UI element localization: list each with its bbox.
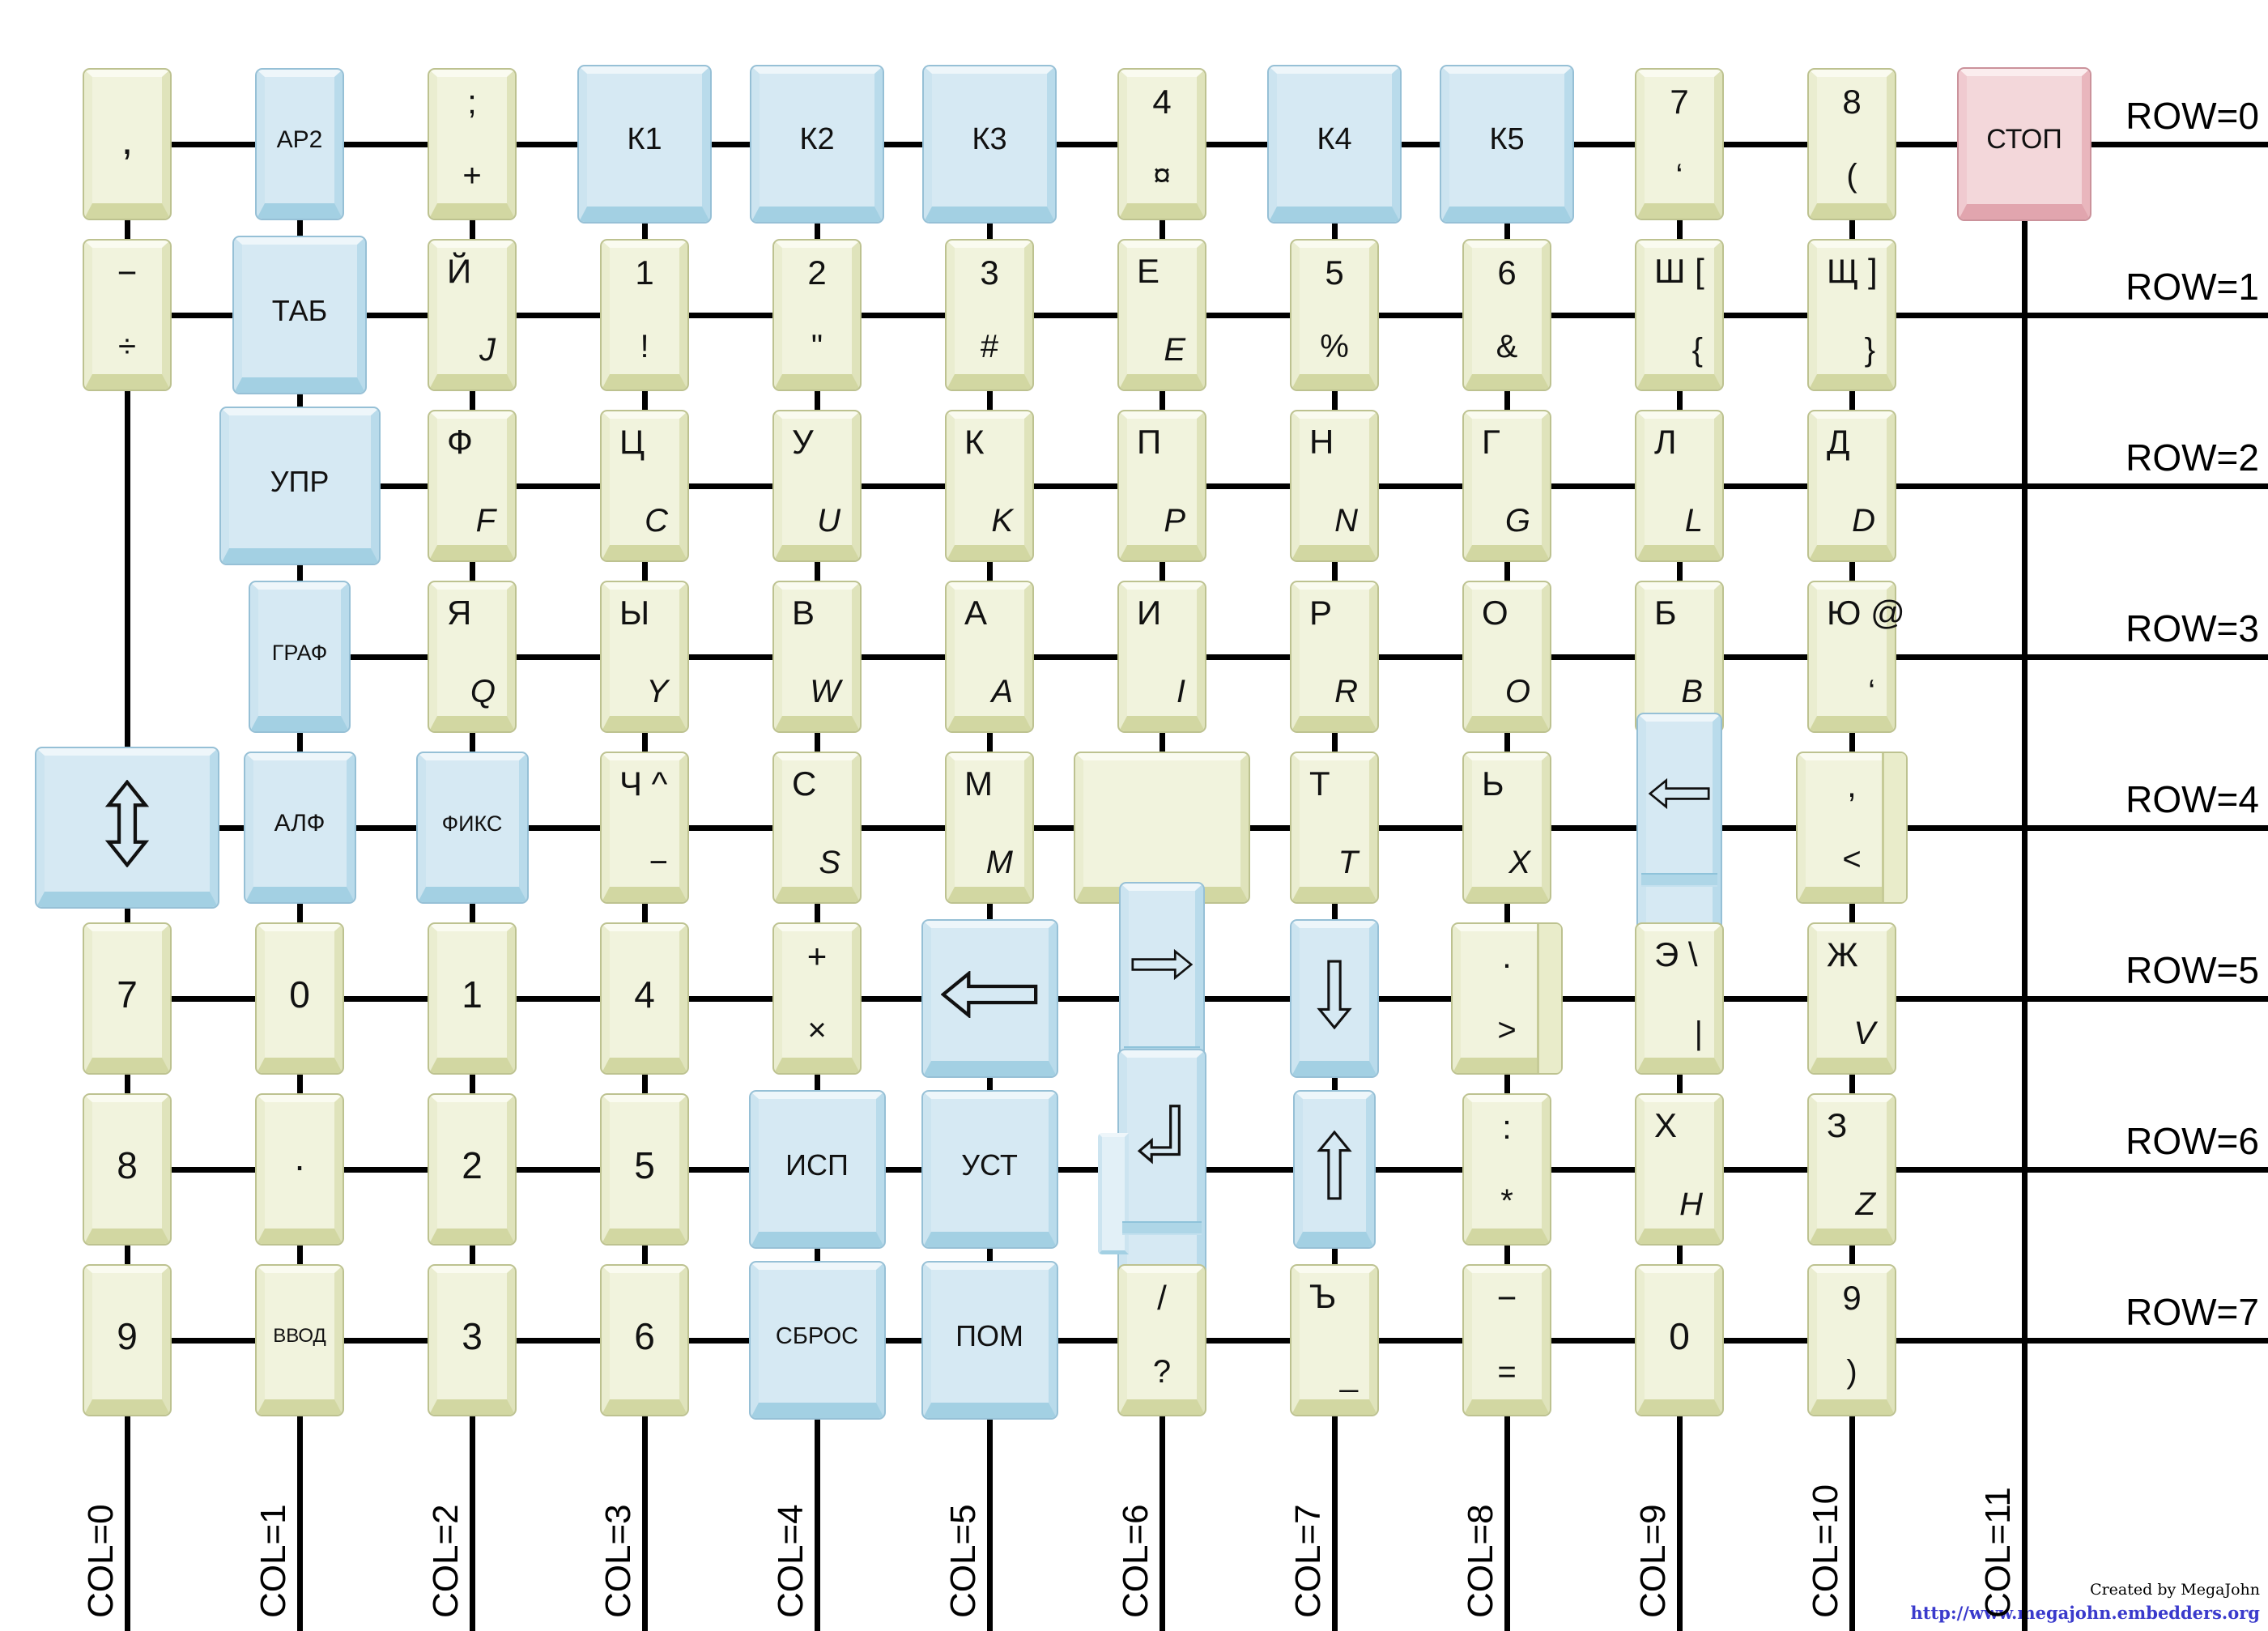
key-label: ИСП bbox=[759, 1099, 876, 1232]
keyboard-matrix-diagram: Created by MegaJohn http://www.megajohn.… bbox=[0, 0, 2268, 1631]
key-r4c8[interactable]: ЬX bbox=[1464, 753, 1550, 902]
key-label-main: Е bbox=[1137, 254, 1160, 288]
key-r1c8[interactable]: 6& bbox=[1464, 241, 1550, 390]
key-label-main: Я bbox=[447, 596, 471, 630]
key-label-shift: − bbox=[649, 846, 668, 879]
key-label-shift: Z bbox=[1856, 1188, 1875, 1220]
key-r4c3[interactable]: Ч ^− bbox=[602, 753, 687, 902]
key-label-shift: L bbox=[1685, 505, 1703, 537]
key-label-main: 1 bbox=[610, 256, 679, 290]
key-r0c11[interactable]: СТОП bbox=[1959, 69, 2090, 219]
key-label-shift: " bbox=[782, 330, 852, 363]
key-label-shift: E bbox=[1164, 334, 1185, 366]
key-label-main: Д bbox=[1827, 425, 1849, 459]
key-label-main: 4 bbox=[1127, 85, 1197, 119]
key-r4c7[interactable]: ТT bbox=[1291, 753, 1377, 902]
key-label-main: Щ ] bbox=[1827, 254, 1878, 288]
key-r5c1[interactable]: 0 bbox=[257, 924, 343, 1073]
key-label-shift: X bbox=[1508, 846, 1530, 879]
key-label-main: 5 bbox=[1300, 256, 1369, 290]
key-r0c8[interactable]: К5 bbox=[1441, 66, 1572, 222]
credit-author: Created by MegaJohn bbox=[1910, 1579, 2260, 1601]
key-r2c9[interactable]: ЛL bbox=[1636, 411, 1722, 560]
key-r0c1[interactable]: АР2 bbox=[257, 70, 343, 219]
key-label-shift: ‘ bbox=[1868, 675, 1875, 708]
key-r0c10[interactable]: 8( bbox=[1809, 70, 1895, 219]
row-label-2: ROW=2 bbox=[2061, 436, 2259, 479]
key-label-main: В bbox=[792, 596, 815, 630]
col-label-8: COL=8 bbox=[1458, 1440, 1504, 1618]
key-label-main: Л bbox=[1654, 425, 1677, 459]
enter-icon bbox=[1127, 1058, 1197, 1274]
key-r3c7[interactable]: РR bbox=[1291, 582, 1377, 731]
key-r5c9[interactable]: Э \| bbox=[1636, 924, 1722, 1073]
col-label-10: COL=10 bbox=[1803, 1440, 1849, 1618]
key-label-shift: U bbox=[817, 505, 840, 537]
key-label: К2 bbox=[760, 74, 874, 207]
key-r6c4[interactable]: ИСП bbox=[751, 1092, 884, 1247]
key-r3c6[interactable]: ИI bbox=[1119, 582, 1205, 731]
key-r2c5[interactable]: КK bbox=[947, 411, 1032, 560]
key-r7c0[interactable]: 9 bbox=[84, 1266, 170, 1415]
key-label: 9 bbox=[92, 1273, 162, 1399]
key-label-shift: D bbox=[1852, 505, 1875, 537]
key-label-main: Б bbox=[1654, 596, 1677, 630]
credits: Created by MegaJohn http://www.megajohn.… bbox=[1910, 1579, 2260, 1625]
key-r6c8[interactable]: :* bbox=[1464, 1095, 1550, 1244]
key-label-shift: T bbox=[1338, 846, 1358, 879]
key-r2c7[interactable]: НN bbox=[1291, 411, 1377, 560]
key-label-main: Ч ^ bbox=[619, 767, 667, 801]
key-label-main: Х bbox=[1654, 1109, 1677, 1143]
key-label-main: Ж bbox=[1827, 938, 1858, 972]
row-label-7: ROW=7 bbox=[2061, 1290, 2259, 1334]
key-label-shift: V bbox=[1853, 1017, 1875, 1050]
key-label: 0 bbox=[265, 931, 334, 1058]
key-r1c4[interactable]: 2" bbox=[774, 241, 860, 390]
key-label: 1 bbox=[437, 931, 507, 1058]
key-label-shift: K bbox=[991, 505, 1013, 537]
key-label: ФИКС bbox=[426, 760, 519, 887]
key-label-shift: % bbox=[1300, 330, 1369, 363]
key-r0c4[interactable]: К2 bbox=[751, 66, 883, 222]
key-label-shift: { bbox=[1692, 334, 1703, 366]
key-r3c1[interactable]: ГРАФ bbox=[250, 582, 349, 731]
key-label-shift: ? bbox=[1127, 1356, 1197, 1388]
key-r7c9[interactable]: 0 bbox=[1636, 1266, 1722, 1415]
key-label: 8 bbox=[92, 1102, 162, 1229]
key-r3c10[interactable]: Ю @‘ bbox=[1809, 582, 1895, 731]
key-r6c3[interactable]: 5 bbox=[602, 1095, 687, 1244]
row-label-6: ROW=6 bbox=[2061, 1119, 2259, 1163]
key-label-main: 6 bbox=[1472, 256, 1542, 290]
row-label-0: ROW=0 bbox=[2061, 94, 2259, 138]
key-label: 7 bbox=[92, 931, 162, 1058]
col-label-4: COL=4 bbox=[768, 1440, 814, 1618]
col-label-0: COL=0 bbox=[79, 1440, 124, 1618]
key-label: УСТ bbox=[931, 1099, 1049, 1232]
key-label-shift: > bbox=[1461, 1014, 1553, 1046]
key-label-shift: I bbox=[1177, 675, 1185, 708]
key-label-shift: & bbox=[1472, 330, 1542, 363]
key-r7c1[interactable]: ВВОД bbox=[257, 1266, 343, 1415]
key-r2c10[interactable]: ДD bbox=[1809, 411, 1895, 560]
key-r7c3[interactable]: 6 bbox=[602, 1266, 687, 1415]
key-label-shift: = bbox=[1472, 1356, 1542, 1388]
key-label-shift: Q bbox=[470, 675, 496, 708]
row-label-5: ROW=5 bbox=[2061, 948, 2259, 992]
row-label-4: ROW=4 bbox=[2061, 777, 2259, 821]
key-label-shift: ! bbox=[610, 330, 679, 363]
key-label-main: , bbox=[1806, 769, 1898, 803]
shift-updown-icon bbox=[45, 756, 210, 892]
key-r4c1[interactable]: АЛФ bbox=[245, 753, 355, 902]
key-r6c10[interactable]: ЗZ bbox=[1809, 1095, 1895, 1244]
key-r0c3[interactable]: К1 bbox=[579, 66, 710, 222]
key-label-shift: N bbox=[1334, 505, 1358, 537]
key-label-main: Ь bbox=[1482, 767, 1504, 801]
key-label-shift: × bbox=[782, 1014, 852, 1046]
arrow-left-icon bbox=[931, 928, 1049, 1061]
key-label: АЛФ bbox=[253, 760, 347, 887]
key-label-shift: B bbox=[1681, 675, 1703, 708]
key-label-main: З bbox=[1827, 1109, 1847, 1143]
credit-url[interactable]: http://www.megajohn.embedders.org bbox=[1910, 1601, 2260, 1625]
key-r5c4[interactable]: +× bbox=[774, 924, 860, 1073]
key-r0c7[interactable]: К4 bbox=[1269, 66, 1400, 222]
key-label: 2 bbox=[437, 1102, 507, 1229]
key-r4c2[interactable]: ФИКС bbox=[418, 753, 527, 902]
key-label: К5 bbox=[1449, 74, 1564, 207]
key-label-main: М bbox=[964, 767, 993, 801]
key-label-shift: H bbox=[1679, 1188, 1703, 1220]
key-label-shift: < bbox=[1806, 843, 1898, 875]
key-label: 3 bbox=[437, 1273, 507, 1399]
key-r1c9[interactable]: Ш [{ bbox=[1636, 241, 1722, 390]
key-r5c7[interactable] bbox=[1291, 921, 1377, 1076]
key-r2c3[interactable]: ЦC bbox=[602, 411, 687, 560]
key-label-main: − bbox=[1472, 1281, 1542, 1315]
key-r4c10[interactable]: ,< bbox=[1798, 753, 1906, 902]
key-flange bbox=[1098, 1133, 1129, 1254]
key-label-shift: M bbox=[986, 846, 1013, 879]
key-label-main: Ф bbox=[447, 425, 473, 459]
key-label-main: С bbox=[792, 767, 816, 801]
key-r3c2[interactable]: ЯQ bbox=[429, 582, 515, 731]
key-r3c3[interactable]: ЫY bbox=[602, 582, 687, 731]
key-label: К1 bbox=[587, 74, 702, 207]
key-label-shift: ¤ bbox=[1127, 160, 1197, 192]
key-label-main: / bbox=[1127, 1281, 1197, 1315]
key-label: 5 bbox=[610, 1102, 679, 1229]
key-r6c5[interactable]: УСТ bbox=[923, 1092, 1057, 1247]
col-label-1: COL=1 bbox=[251, 1440, 296, 1618]
key-label-shift: } bbox=[1865, 334, 1875, 366]
key-label: К3 bbox=[932, 74, 1047, 207]
key-label: ПОМ bbox=[931, 1270, 1049, 1403]
key-label: УПР bbox=[229, 415, 371, 548]
key-label: 4 bbox=[610, 931, 679, 1058]
key-r2c2[interactable]: ФF bbox=[429, 411, 515, 560]
key-label-main: П bbox=[1137, 425, 1161, 459]
key-r1c0[interactable]: −÷ bbox=[84, 241, 170, 390]
arrow-down-icon bbox=[1300, 928, 1369, 1061]
key-label-shift: ‘ bbox=[1645, 160, 1714, 192]
key-r2c1[interactable]: УПР bbox=[221, 408, 379, 564]
key-label-main: 9 bbox=[1817, 1281, 1887, 1315]
key-label-main: А bbox=[964, 596, 987, 630]
key-r7c7[interactable]: Ъ_ bbox=[1291, 1266, 1377, 1415]
key-label-main: О bbox=[1482, 596, 1508, 630]
key-label-shift: O bbox=[1505, 675, 1530, 708]
key-r0c5[interactable]: К3 bbox=[924, 66, 1055, 222]
key-label-main: Й bbox=[447, 254, 471, 288]
key-r1c1[interactable]: ТАБ bbox=[234, 237, 365, 393]
key-r6c0[interactable]: 8 bbox=[84, 1095, 170, 1244]
key-label-shift: S bbox=[819, 846, 840, 879]
key-label-main: 7 bbox=[1645, 85, 1714, 119]
key-label-shift: | bbox=[1695, 1017, 1703, 1050]
key-label-shift: P bbox=[1164, 505, 1185, 537]
key-label-shift: G bbox=[1505, 505, 1530, 537]
key-label-main: Ц bbox=[619, 425, 645, 459]
key-label-main: Ш [ bbox=[1654, 254, 1704, 288]
key-label-shift: _ bbox=[1340, 1359, 1358, 1391]
key-label-shift: C bbox=[645, 505, 668, 537]
key-r7c2[interactable]: 3 bbox=[429, 1266, 515, 1415]
key-label: 0 bbox=[1645, 1273, 1714, 1399]
key-label-shift: Y bbox=[646, 675, 668, 708]
key-label-shift: F bbox=[476, 505, 496, 537]
key-r7c8[interactable]: −= bbox=[1464, 1266, 1550, 1415]
col-label-11: COL=11 bbox=[1976, 1440, 2021, 1618]
key-r4c4[interactable]: СS bbox=[774, 753, 860, 902]
key-r1c6[interactable]: ЕE bbox=[1119, 241, 1205, 390]
key-r0c2[interactable]: ;+ bbox=[429, 70, 515, 219]
row-label-3: ROW=3 bbox=[2061, 607, 2259, 650]
key-r5c0[interactable]: 7 bbox=[84, 924, 170, 1073]
key-label: ГРАФ bbox=[258, 590, 341, 716]
key-r7c6[interactable]: /? bbox=[1119, 1266, 1205, 1415]
row-wire-3 bbox=[263, 654, 2268, 660]
key-label: СБРОС bbox=[759, 1270, 876, 1403]
key-label: СТОП bbox=[1967, 76, 2082, 204]
key-r1c10[interactable]: Щ ]} bbox=[1809, 241, 1895, 390]
key-r7c4[interactable]: СБРОС bbox=[751, 1263, 884, 1418]
key-r2c6[interactable]: ПP bbox=[1119, 411, 1205, 560]
key-label-main: 3 bbox=[955, 256, 1024, 290]
key-label-main: К bbox=[964, 425, 984, 459]
key-r6c1[interactable]: · bbox=[257, 1095, 343, 1244]
key-r1c7[interactable]: 5% bbox=[1291, 241, 1377, 390]
key-label-main: − bbox=[92, 256, 162, 290]
key-label-main: Р bbox=[1309, 596, 1332, 630]
key-label-main: И bbox=[1137, 596, 1161, 630]
key-label-main: Г bbox=[1482, 425, 1500, 459]
key-label-shift: ( bbox=[1817, 160, 1887, 192]
key-label-main: Т bbox=[1309, 767, 1330, 801]
arrow-up-icon bbox=[1303, 1099, 1366, 1232]
key-label-main: 8 bbox=[1817, 85, 1887, 119]
key-r2c4[interactable]: УU bbox=[774, 411, 860, 560]
key-label-shift: A bbox=[991, 675, 1013, 708]
col-label-3: COL=3 bbox=[596, 1440, 641, 1618]
key-r4c9[interactable] bbox=[1638, 714, 1721, 941]
key-r6c6[interactable] bbox=[1119, 1050, 1205, 1289]
key-label-main: + bbox=[782, 939, 852, 973]
key-r3c4[interactable]: ВW bbox=[774, 582, 860, 731]
col-label-2: COL=2 bbox=[423, 1440, 469, 1618]
key-r5c3[interactable]: 4 bbox=[602, 924, 687, 1073]
backspace-icon bbox=[1646, 722, 1713, 926]
row-label-1: ROW=1 bbox=[2061, 265, 2259, 309]
key-label: 6 bbox=[610, 1273, 679, 1399]
key-label-main: Ы bbox=[619, 596, 649, 630]
key-label-shift: * bbox=[1472, 1185, 1542, 1217]
col-label-9: COL=9 bbox=[1631, 1440, 1676, 1618]
key-label-main: ; bbox=[437, 85, 507, 119]
key-r5c5[interactable] bbox=[923, 921, 1057, 1076]
key-label-main: Ю @ bbox=[1827, 596, 1905, 630]
key-r5c10[interactable]: ЖV bbox=[1809, 924, 1895, 1073]
key-r1c5[interactable]: 3# bbox=[947, 241, 1032, 390]
key-r0c9[interactable]: 7‘ bbox=[1636, 70, 1722, 219]
key-label-main: . bbox=[1461, 939, 1553, 973]
key-r4c5[interactable]: МM bbox=[947, 753, 1032, 902]
key-label-main: У bbox=[792, 425, 814, 459]
key-r0c6[interactable]: 4¤ bbox=[1119, 70, 1205, 219]
key-r0c0[interactable]: , bbox=[84, 70, 170, 219]
key-label-shift: J bbox=[479, 334, 496, 366]
key-label: ВВОД bbox=[265, 1273, 334, 1399]
key-label-shift: ÷ bbox=[92, 330, 162, 363]
key-label-main: 2 bbox=[782, 256, 852, 290]
key-label-main: : bbox=[1472, 1110, 1542, 1144]
key-r7c5[interactable]: ПОМ bbox=[923, 1263, 1057, 1418]
key-label: ТАБ bbox=[242, 245, 357, 377]
key-label-shift: # bbox=[955, 330, 1024, 363]
key-label-main: Э \ bbox=[1654, 938, 1698, 972]
col-label-6: COL=6 bbox=[1113, 1440, 1159, 1618]
key-label-shift: R bbox=[1334, 675, 1358, 708]
key-r5c8[interactable]: .> bbox=[1453, 924, 1561, 1073]
key-label: К4 bbox=[1277, 74, 1392, 207]
key-r2c8[interactable]: ГG bbox=[1464, 411, 1550, 560]
key-r7c10[interactable]: 9) bbox=[1809, 1266, 1895, 1415]
key-r6c2[interactable]: 2 bbox=[429, 1095, 515, 1244]
key-label: АР2 bbox=[265, 77, 334, 203]
col-wire-11 bbox=[2022, 121, 2028, 1631]
key-label-shift: ) bbox=[1817, 1356, 1887, 1388]
key-label-main: Ъ bbox=[1309, 1280, 1336, 1314]
key-r6c9[interactable]: ХH bbox=[1636, 1095, 1722, 1244]
key-r5c2[interactable]: 1 bbox=[429, 924, 515, 1073]
key-r3c5[interactable]: АA bbox=[947, 582, 1032, 731]
col-label-7: COL=7 bbox=[1286, 1440, 1331, 1618]
key-label: · bbox=[265, 1102, 334, 1229]
key-r6c7[interactable] bbox=[1295, 1092, 1374, 1247]
key-r1c2[interactable]: ЙJ bbox=[429, 241, 515, 390]
key-r4c0[interactable] bbox=[36, 748, 218, 907]
col-label-5: COL=5 bbox=[941, 1440, 986, 1618]
key-label: , bbox=[92, 77, 162, 203]
key-r4c6[interactable] bbox=[1075, 753, 1249, 902]
key-r3c9[interactable]: БB bbox=[1636, 582, 1722, 731]
key-label-shift: + bbox=[437, 160, 507, 192]
key-label-main: Н bbox=[1309, 425, 1334, 459]
key-r3c8[interactable]: ОO bbox=[1464, 582, 1550, 731]
row-wire-2 bbox=[263, 483, 2268, 489]
key-r1c3[interactable]: 1! bbox=[602, 241, 687, 390]
key-label-shift: W bbox=[810, 675, 840, 708]
